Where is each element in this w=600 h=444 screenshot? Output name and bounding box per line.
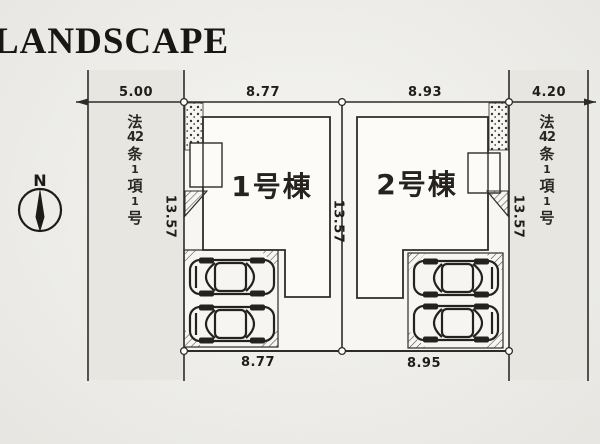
dim-label-lot2-frontage-bottom: 8.95 <box>398 356 450 371</box>
road-right-char: 条 <box>539 146 554 162</box>
road-left-char: 項 <box>127 178 142 194</box>
road-right-char: 項 <box>539 178 554 194</box>
dim-label-depth-left: 13.57 <box>163 191 178 243</box>
road-right-char: 号 <box>539 210 554 226</box>
dim-label-depth-right: 13.57 <box>511 191 526 243</box>
dim-label-lot2-frontage-top: 8.93 <box>399 85 451 100</box>
road-left-char: 条 <box>127 146 142 162</box>
car-icon <box>414 304 498 343</box>
building-2-label: 2号棟 <box>352 163 482 203</box>
compass-north-label: N <box>33 171 46 190</box>
road-right-designation: 法 42 条 1 項 1 号 <box>531 114 563 226</box>
road-left-designation: 法 42 条 1 項 1 号 <box>119 114 151 226</box>
road-left-char: 1 <box>131 162 139 178</box>
road-left-char: 1 <box>131 194 139 210</box>
road-right-char: 1 <box>543 162 551 178</box>
dim-label-road-left-width: 5.00 <box>110 85 162 100</box>
dim-label-road-right-width: 4.20 <box>523 85 575 100</box>
site-plan-canvas: N LANDSCAPE 5.00 8.77 8.93 4.20 8.77 8.9… <box>0 0 600 444</box>
dim-label-lot1-frontage-top: 8.77 <box>237 85 289 100</box>
car-icon <box>414 259 498 298</box>
compass-needle <box>36 188 45 232</box>
car-icon <box>190 258 274 297</box>
compass-icon: N <box>19 171 61 232</box>
road-left-char: 42 <box>127 130 143 146</box>
road-left-char: 号 <box>127 210 142 226</box>
road-right-char: 法 <box>539 114 554 130</box>
building-1-label: 1号棟 <box>207 165 337 205</box>
dim-label-lot1-frontage-bottom: 8.77 <box>232 355 284 370</box>
stipple-strip-right <box>489 103 508 150</box>
drawing-title: LANDSCAPE <box>0 20 229 63</box>
road-right-char: 1 <box>543 194 551 210</box>
road-right-char: 42 <box>539 130 555 146</box>
car-icon <box>190 305 274 344</box>
road-left-char: 法 <box>127 114 142 130</box>
